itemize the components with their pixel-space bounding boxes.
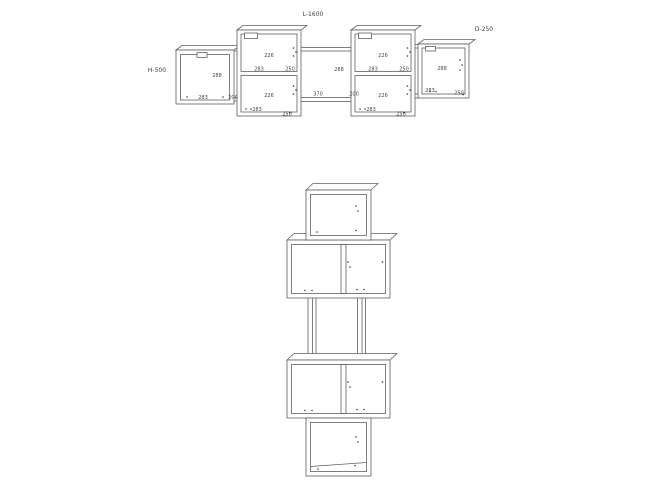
cabinet-right (351, 26, 421, 117)
hanger-bracket (245, 33, 258, 39)
dim-leftbox-height: 288 (212, 73, 222, 79)
dim-rightbox-height: 288 (437, 66, 447, 72)
technical-drawing-page: L-1600 H-500 D-250 288 283 200 226 283 2… (0, 0, 648, 486)
dim-cab1-bot-height: 226 (264, 93, 274, 99)
dim-cab1-bot-depth: 250 (282, 112, 292, 118)
dim-rightbox-width: 283 (425, 88, 435, 94)
dim-cab2-top-depth: 250 (399, 67, 409, 73)
dim-middle-height: 288 (334, 67, 344, 73)
upper-double-cube (287, 234, 397, 299)
front-elevation-drawing: L-1600 H-500 D-250 288 283 200 226 283 2… (148, 11, 493, 118)
top-cube (306, 184, 378, 241)
overall-height-label: H-500 (148, 67, 166, 74)
dim-middle-width: 370 (313, 92, 323, 98)
dim-cab2-bot-depth: 250 (396, 112, 406, 118)
dim-leftbox-width: 283 (198, 95, 208, 101)
hanger-bracket (426, 47, 436, 52)
perspective-drawing (287, 184, 397, 477)
overall-depth-label: D-250 (475, 26, 493, 33)
dim-cab1-top-depth: 250 (285, 67, 295, 73)
cabinet-left (237, 26, 307, 117)
dim-cab2-top-width: 283 (368, 67, 378, 73)
bottom-cube (306, 418, 371, 476)
dim-cab2-bot-width: 283 (366, 107, 376, 113)
dim-leftbox-edge: 200 (228, 95, 238, 101)
dim-cab2-bot-height: 226 (378, 93, 388, 99)
dim-middle-edge: 200 (349, 92, 359, 98)
dim-cab1-bot-width: 283 (252, 107, 262, 113)
dim-cab1-top-width: 283 (254, 67, 264, 73)
hanger-bracket (359, 33, 372, 39)
shelf-drawing-svg: L-1600 H-500 D-250 288 283 200 226 283 2… (0, 0, 648, 486)
dim-cab1-top-height: 226 (264, 53, 274, 59)
overall-length-label: L-1600 (303, 11, 324, 18)
dim-rightbox-edge: 250 (454, 91, 464, 97)
lower-double-cube (287, 354, 397, 419)
hanger-bracket (197, 53, 207, 58)
middle-connector-panels (308, 294, 366, 363)
dim-cab2-top-height: 226 (378, 53, 388, 59)
